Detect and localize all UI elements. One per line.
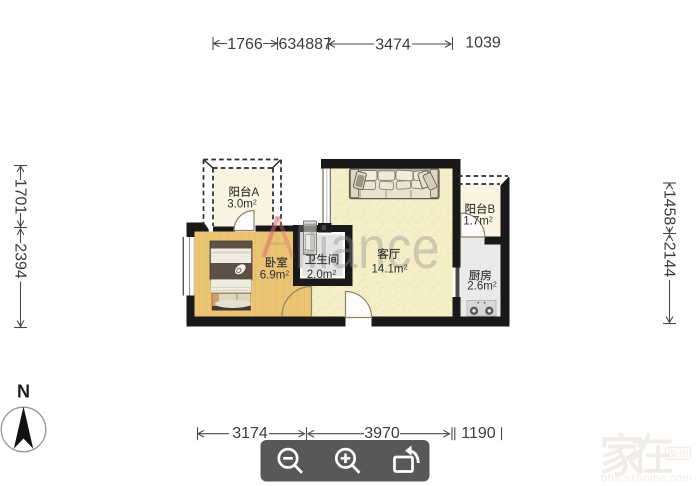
svg-text:1766: 1766 — [227, 36, 263, 53]
svg-text:3474: 3474 — [375, 37, 411, 54]
svg-text:N: N — [17, 382, 30, 402]
svg-text:3174: 3174 — [232, 425, 268, 442]
svg-text:3.0m2: 3.0m2 — [227, 199, 257, 211]
svg-text:634887: 634887 — [279, 36, 332, 53]
svg-text:1.7m2: 1.7m2 — [463, 216, 493, 228]
svg-text:bbs.szhome.com: bbs.szhome.com — [601, 473, 693, 485]
svg-text:B: B — [488, 204, 496, 216]
svg-text:14.1m2: 14.1m2 — [372, 264, 408, 276]
svg-text:2394: 2394 — [12, 243, 29, 279]
svg-text:6.9m2: 6.9m2 — [260, 270, 290, 282]
svg-text:2.0m2: 2.0m2 — [307, 269, 337, 281]
svg-text:1039: 1039 — [465, 35, 501, 52]
svg-text:2144: 2144 — [661, 242, 678, 278]
svg-text:1190: 1190 — [461, 425, 496, 442]
svg-text:2.6m2: 2.6m2 — [467, 281, 497, 293]
svg-text:1701: 1701 — [12, 179, 29, 215]
svg-text:1458: 1458 — [661, 190, 678, 226]
svg-text:A: A — [252, 187, 260, 199]
svg-text:3970: 3970 — [364, 425, 400, 442]
